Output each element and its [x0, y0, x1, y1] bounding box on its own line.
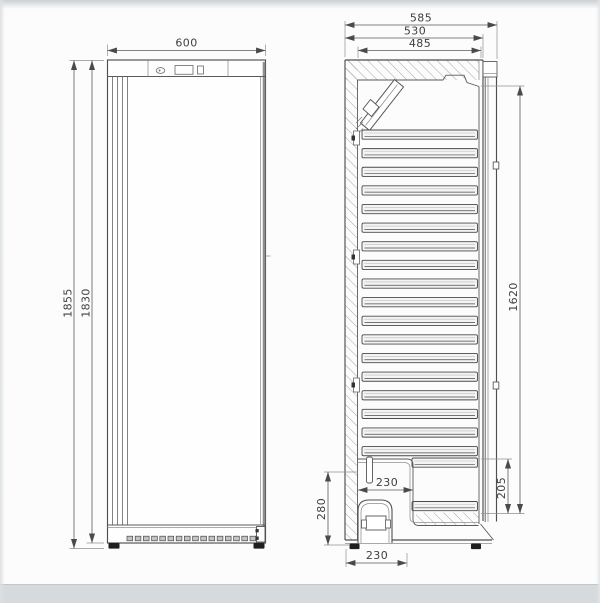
vent-slot [234, 536, 240, 541]
power-switch-icon [198, 66, 204, 74]
shelf-slat [362, 130, 478, 139]
dim-label-overall-height: 1855 [62, 288, 75, 318]
front-right-foot [254, 543, 265, 549]
shelf-slat [362, 391, 478, 400]
door-bottom-edge [481, 524, 494, 540]
dim-label-base-depth: 230 [366, 549, 388, 562]
floor-insulation-hatch [416, 513, 479, 526]
vent-slot [225, 536, 231, 541]
shelf-slat [412, 502, 478, 511]
vent-slot [184, 536, 190, 541]
shelf-slat [362, 316, 478, 325]
dim-side-interior-height: 1620 [481, 86, 525, 514]
shelf-slat [412, 458, 478, 467]
drain-tube [367, 457, 373, 483]
front-view: 600 1855 1830 [62, 37, 271, 549]
dim-label-interior-depth: 485 [409, 37, 431, 50]
vent-slot [242, 536, 248, 541]
shelf-slat [362, 447, 478, 456]
shelf-slat [362, 372, 478, 381]
fridge-dimension-drawing: 600 1855 1830 [0, 0, 600, 603]
vent-slot [160, 536, 166, 541]
shelf-slats [362, 130, 478, 511]
compressor-terminal-box [366, 516, 386, 530]
dim-side-base-depth: 230 [346, 549, 407, 567]
dim-label-recess-depth: 230 [376, 476, 398, 489]
shelf-slat [362, 335, 478, 344]
dim-front-width: 600 [108, 37, 266, 57]
vent-slot [143, 536, 149, 541]
shelf-slat [362, 298, 478, 307]
lock-keyhole-icon [159, 70, 161, 72]
door-hinge-upper [493, 162, 499, 169]
vent-slot [193, 536, 199, 541]
evaporator-duct [356, 80, 404, 135]
shelf-slat [362, 204, 478, 213]
vent-slot [201, 536, 207, 541]
shelf-slat [362, 242, 478, 251]
door-hinge-lower [493, 382, 499, 389]
dim-label-body-height: 1830 [80, 288, 93, 318]
dim-label-overall-depth: 585 [410, 12, 432, 25]
door-top-cap [483, 62, 497, 78]
shelf-slat [362, 223, 478, 232]
vent-slot [217, 536, 223, 541]
compressor [358, 500, 392, 543]
shelf-slat [362, 428, 478, 437]
dim-label-interior-height: 1620 [507, 282, 520, 312]
vent-slot [168, 536, 174, 541]
front-left-foot [109, 543, 120, 549]
dim-label-recess-height: 280 [315, 498, 328, 520]
side-right-foot [471, 544, 481, 550]
dim-front-body-height: 1830 [80, 61, 105, 544]
front-cabinet-outline [108, 60, 266, 543]
shelf-slat [362, 149, 478, 158]
latch-notch-top [256, 529, 259, 532]
shelf-slat [362, 409, 478, 418]
vent-slot [135, 536, 141, 541]
vent-slot [152, 536, 158, 541]
shelf-slat [362, 167, 478, 176]
vent-slot [250, 536, 256, 541]
dim-side-interior-depth: 485 [358, 37, 481, 58]
display-icon [175, 66, 193, 75]
dim-label-body-depth: 530 [404, 25, 426, 38]
side-left-foot [350, 544, 360, 550]
shelf-slat [362, 279, 478, 288]
vent-slot [176, 536, 182, 541]
shelf-slat [362, 353, 478, 362]
vent-slot [209, 536, 215, 541]
dim-label-front-width: 600 [175, 37, 197, 50]
technical-drawing-page: 600 1855 1830 [0, 0, 600, 603]
dim-label-floor-height: 205 [495, 477, 508, 499]
shelf-slat [362, 260, 478, 269]
shelf-slat [362, 186, 478, 195]
side-view: 585 530 485 1620 205 280 [315, 12, 525, 568]
vent-slot [127, 536, 133, 541]
top-insulation [345, 60, 479, 80]
latch-notch-bottom [256, 537, 259, 540]
